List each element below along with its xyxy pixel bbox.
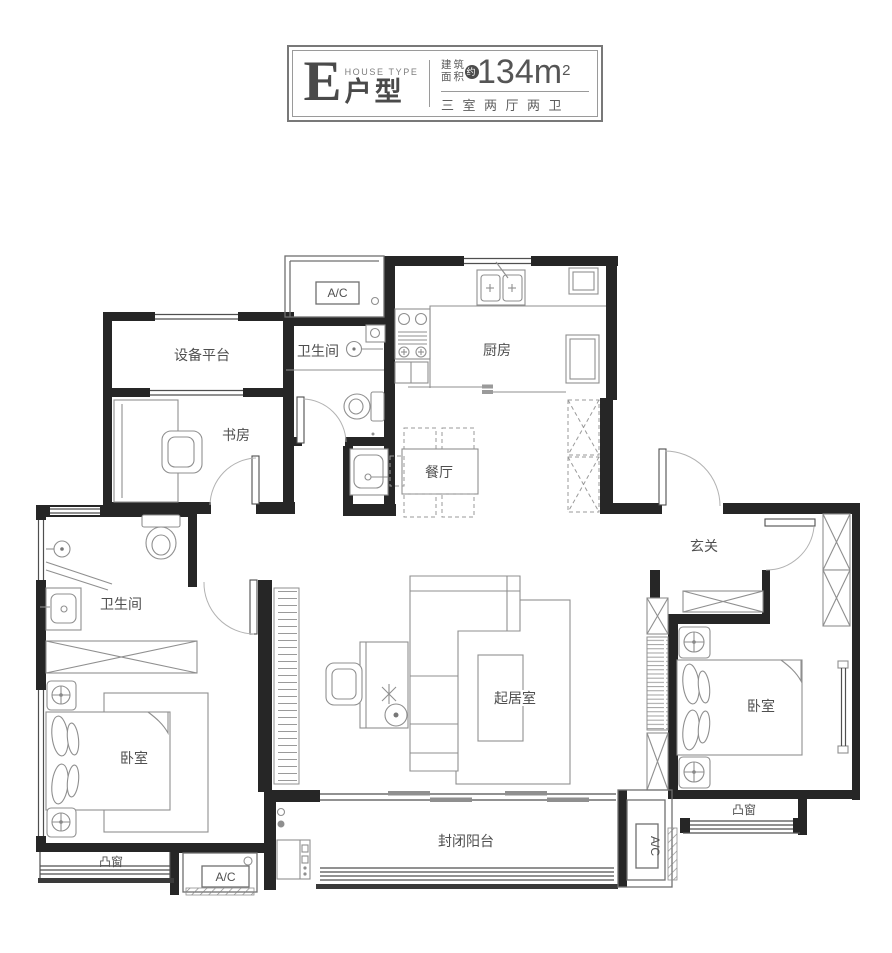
room-label-dining: 餐厅 [425,464,453,480]
label-bay-window-left: 凸窗 [99,855,123,869]
ac-label-top: A/C [327,286,347,300]
living-furniture [274,576,570,784]
floor-plan-page: E HOUSE TYPE 户型 建筑 面积 约 134m2 [0,0,892,953]
room-label-bedroom-right: 卧室 [747,698,775,714]
room-label-balcony: 封闭阳台 [438,833,494,849]
dining-cabinet [568,400,599,512]
study-furniture [114,400,202,502]
room-label-foyer: 玄关 [690,538,718,554]
window-left-lower [36,690,46,836]
bedroom-right-furniture [677,627,802,788]
room-label-equipment-platform: 设备平台 [174,347,230,363]
room-label-kitchen: 厨房 [483,342,511,358]
room-label-bathroom-left: 卫生间 [100,596,142,612]
door-study [210,456,259,505]
room-label-living: 起居室 [494,690,536,706]
ac-label-bottom-left: A/C [215,870,235,884]
door-bathroom-top [297,397,346,443]
stove [395,309,430,359]
window-left-upper [36,520,46,580]
hallway-vanity [350,449,388,495]
washing-machine [277,840,310,879]
ac-label-right: A/C [648,836,662,856]
bay-window-right [680,818,803,833]
window-equipment-top [155,312,238,321]
room-label-bathroom-top: 卫生间 [297,343,339,359]
bedroom-left-furniture [46,641,208,837]
label-bay-window-right: 凸窗 [732,803,756,817]
window-equipment-bottom [150,388,243,397]
bathroom-left-fixtures [40,515,180,630]
riser-column [647,598,668,790]
floor-plan: 设备平台 卫生间 A/C 厨房 书房 餐厅 玄关 卫生间 起居室 卧室 卧室 封… [0,0,892,953]
room-label-study: 书房 [222,427,250,443]
window-bathroom-left-top [50,507,100,515]
kitchen-fixtures [395,262,606,394]
ac-platform-right [618,790,677,887]
door-suite-left [204,580,257,634]
room-label-bedroom-left: 卧室 [120,750,148,766]
window-bedroom-right-wall [838,661,848,753]
door-entry [659,449,720,506]
door-bedroom-right [765,519,815,570]
